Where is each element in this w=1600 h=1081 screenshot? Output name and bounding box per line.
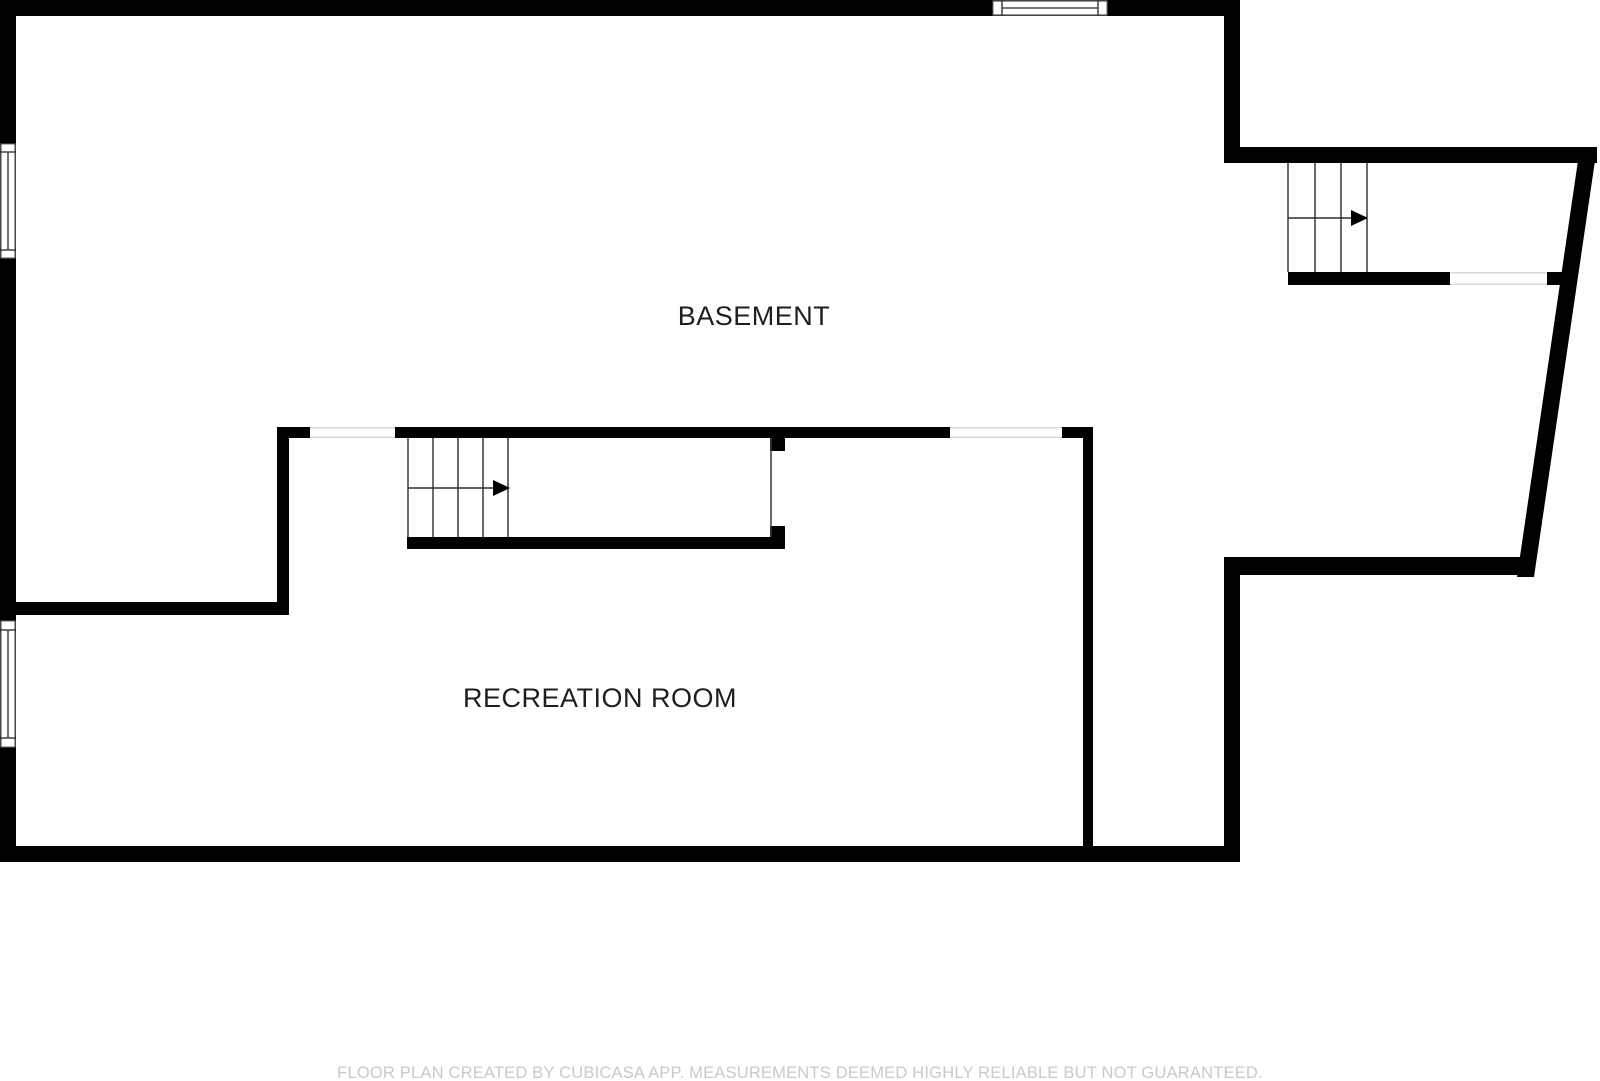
wall-main-stairs-stub-top [770, 438, 785, 451]
stair-direction-arrow-icon [1288, 210, 1368, 226]
opening-right-wing [1450, 273, 1547, 284]
window-left-lower [0, 620, 16, 748]
wall-left-step-vertical [277, 427, 289, 615]
stairs-main [408, 438, 771, 537]
opening-recreation-right [950, 428, 1062, 437]
wall-right-wing-bottom [1227, 557, 1530, 575]
wall-upper-right-vertical [1224, 0, 1240, 163]
wall-right-wing-top [1224, 147, 1597, 163]
floor-plan-canvas: BASEMENT RECREATION ROOM FLOOR PLAN CREA… [0, 0, 1600, 1081]
window-left-upper [0, 143, 16, 259]
room-label-recreation-room: RECREATION ROOM [463, 683, 737, 713]
opening-main-stairs-left [310, 428, 395, 437]
wall-piece-right-of-opening [1062, 427, 1093, 438]
window-top [992, 0, 1108, 16]
wall-main-stairs-stub-bottom [770, 526, 785, 549]
wall-upper-stairs-bottom [1288, 272, 1450, 285]
wall-left-step-horizontal [0, 602, 289, 615]
stairs-upper-wing [1288, 163, 1368, 272]
wall-right-angled [1517, 147, 1597, 577]
wall-upper-stairs-stub [1547, 272, 1565, 285]
stair-direction-arrow-icon [408, 480, 510, 496]
wall-corridor-right [1224, 557, 1240, 862]
room-label-basement: BASEMENT [678, 301, 831, 331]
wall-recreation-right [1083, 438, 1093, 846]
wall-openings [310, 273, 1547, 437]
wall-main-stairs-top-right [395, 427, 950, 438]
wall-main-stairs-bottom [407, 537, 785, 549]
wall-bottom [0, 846, 1240, 862]
footer-disclaimer: FLOOR PLAN CREATED BY CUBICASA APP. MEAS… [337, 1064, 1263, 1081]
floor-plan-page: BASEMENT RECREATION ROOM FLOOR PLAN CREA… [0, 0, 1600, 1081]
